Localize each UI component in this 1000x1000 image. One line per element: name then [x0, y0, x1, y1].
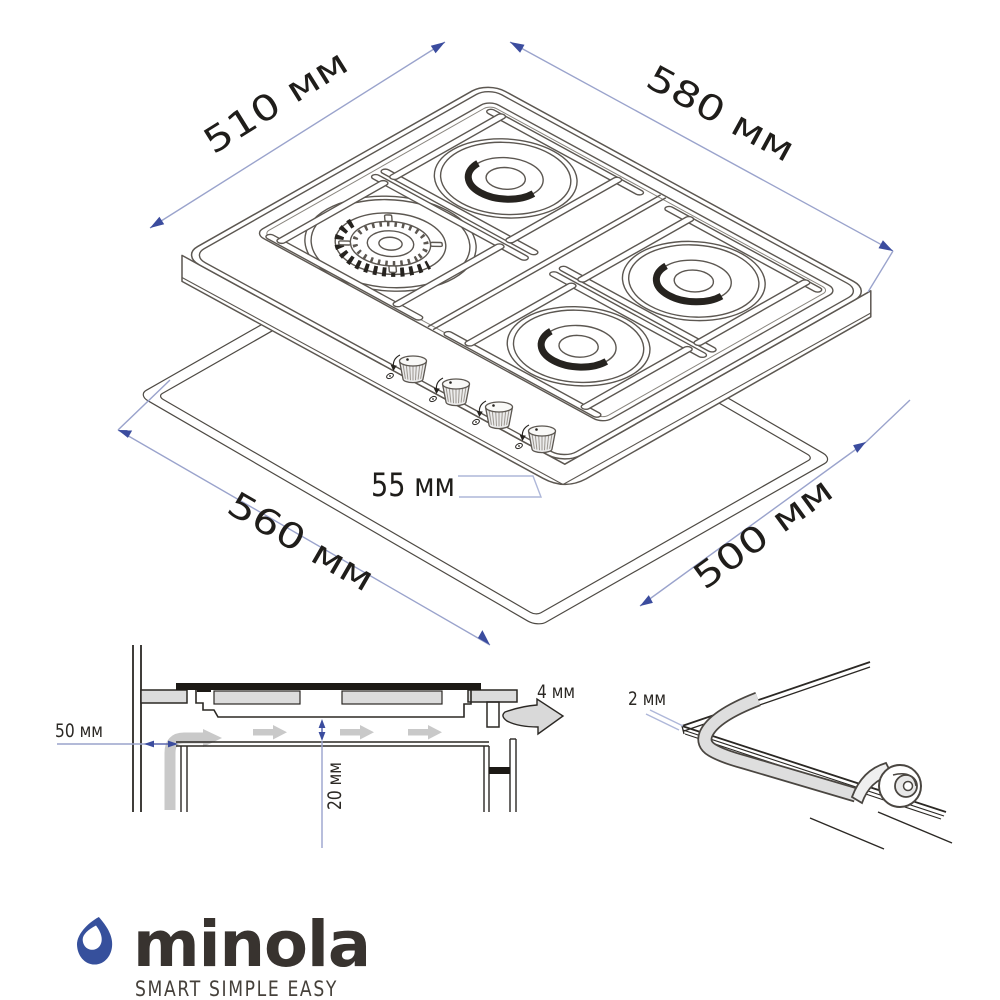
worktop-left [141, 690, 187, 703]
brand-drop-icon [77, 917, 112, 965]
dimension-bottom-clearance-20: 20 мм [319, 719, 346, 848]
airflow-arrows [253, 725, 442, 740]
edge-seal-detail-view: 2 мм [628, 662, 952, 849]
sealing-tape-roll [852, 763, 921, 807]
dimension-seal-thickness-2: 2 мм [628, 688, 683, 730]
technical-drawing-canvas: 560 мм 500 мм [0, 0, 1000, 1000]
dimension-body-height-55: 55 мм [371, 466, 541, 504]
hob-dimensions-sheet: 560 мм 500 мм [0, 0, 1000, 1000]
worktop-right [468, 690, 517, 702]
brand-logo: minola SMART SIMPLE EASY [77, 908, 370, 1000]
dim-4mm-label: 4 мм [537, 681, 575, 703]
brand-wordmark: minola [133, 908, 370, 981]
dim-20mm-label: 20 мм [324, 762, 346, 810]
burner-body-section-2 [342, 691, 442, 704]
burner-body-section-1 [214, 691, 300, 704]
dimension-wall-distance-50: 50 мм [55, 720, 178, 747]
airflow-outlet-arrow [503, 699, 563, 734]
dimension-cutout-depth: 500 мм [640, 400, 910, 606]
dim-500-label: 500 мм [686, 470, 841, 598]
brand-tagline: SMART SIMPLE EASY [135, 977, 338, 1000]
dim-50mm-label: 50 мм [55, 720, 103, 742]
hob-top-panel-section [176, 683, 481, 690]
dim-580-label: 580 мм [640, 58, 801, 171]
dim-510-label: 510 мм [197, 43, 356, 163]
dim-2mm-label: 2 мм [628, 688, 666, 710]
dim-560-label: 560 мм [220, 485, 380, 601]
fixing-bracket-section [487, 702, 499, 727]
dim-55-label: 55 мм [371, 466, 455, 504]
installation-section-view: 4 мм 20 мм 50 мм [55, 645, 575, 848]
